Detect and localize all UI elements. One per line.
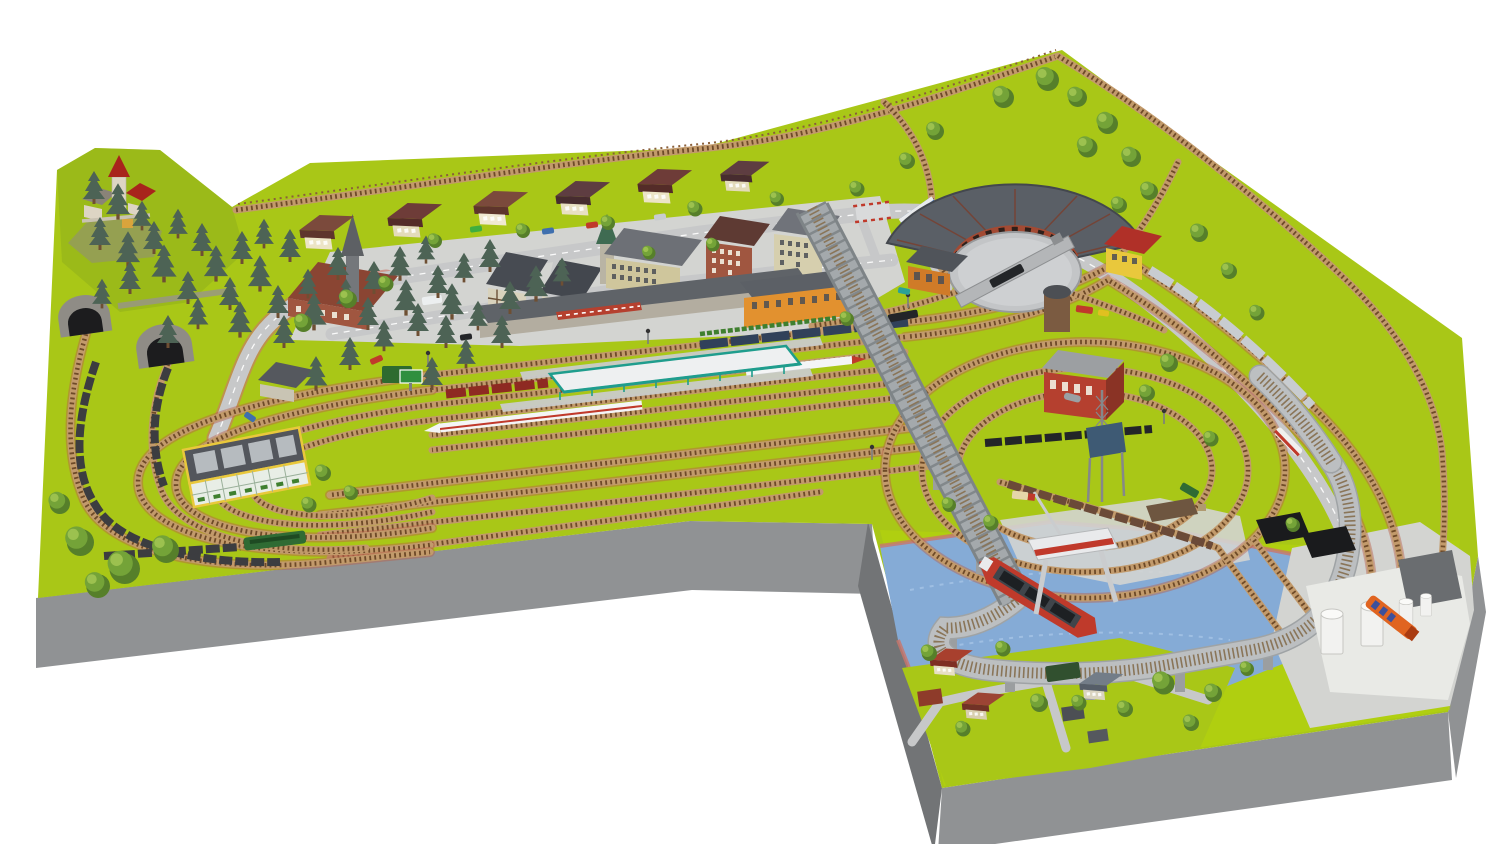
red-brick-depot <box>1042 350 1124 420</box>
layout-render-stage <box>0 0 1500 844</box>
layout-3d-view <box>0 0 1500 844</box>
water-tower <box>1043 285 1071 332</box>
storage-tank <box>1321 609 1343 654</box>
storage-tank <box>1421 594 1432 617</box>
castle-hut <box>122 219 133 228</box>
